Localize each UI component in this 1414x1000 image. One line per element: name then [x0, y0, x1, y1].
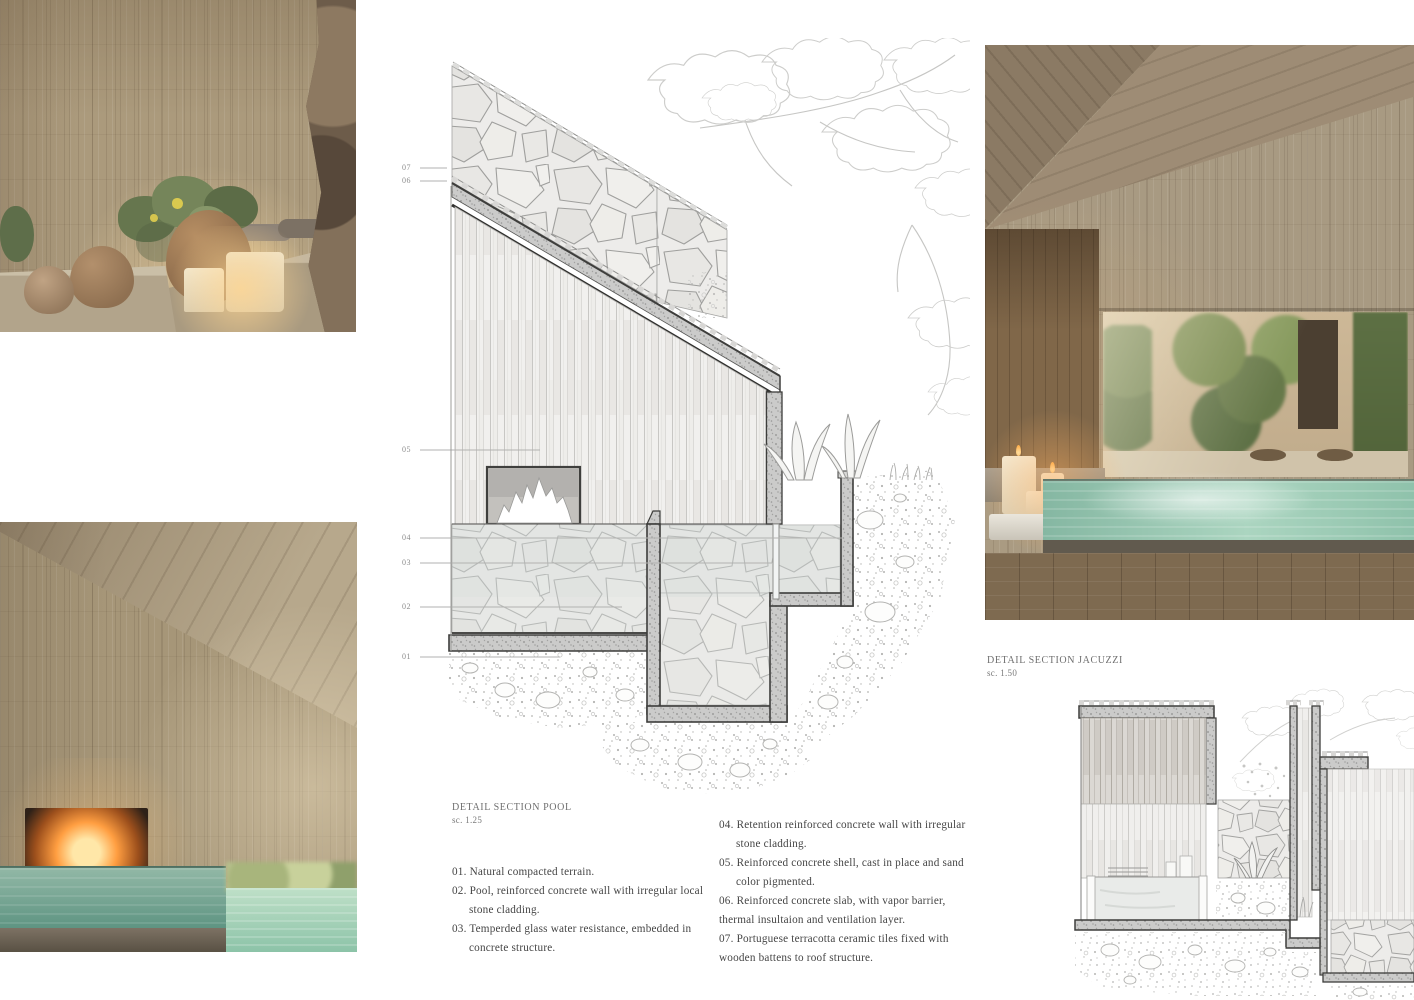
callout-01: 01 [402, 652, 411, 662]
sunlight-overlay [1103, 312, 1408, 478]
note-line: 06. Reinforced concrete slab, with vapor… [719, 892, 949, 911]
photo-fireplace-render [0, 522, 357, 952]
material-notes-col1: 01. Natural compacted terrain. 02. Pool,… [452, 863, 682, 958]
material-notes-col2: 04. Retention reinforced concrete wall w… [719, 816, 949, 968]
note-line: color pigmented. [719, 873, 949, 892]
stone-coping [1043, 540, 1414, 555]
fireplace-detail [487, 467, 580, 524]
wood-tub-front [985, 553, 1414, 620]
pool-floor-slab [449, 635, 660, 651]
stone-coping [0, 928, 230, 952]
note-line: 02. Pool, reinforced concrete wall with … [452, 882, 682, 901]
wall-edge [1320, 769, 1327, 975]
floor-slab [1323, 973, 1414, 982]
agave-plants [764, 414, 932, 480]
clay-pot [70, 246, 134, 308]
sunlit-pool-water [226, 888, 357, 952]
window-post [1199, 876, 1207, 922]
window-post [1087, 876, 1095, 922]
note-line: 04. Retention reinforced concrete wall w… [719, 816, 949, 835]
callout-07: 07 [402, 163, 411, 173]
jacuzzi-water [1095, 877, 1199, 922]
presentation-board: 07 06 05 04 03 02 01 [0, 0, 1414, 1000]
photo-jacuzzi-render [985, 45, 1414, 620]
roof-slab [1079, 706, 1214, 718]
callout-06: 06 [402, 176, 411, 186]
steam-mist [1071, 471, 1328, 529]
basin-wall-left [647, 524, 660, 714]
note-line: thermal insultaion and ventilation layer… [719, 911, 949, 930]
basin-wall-right [770, 601, 787, 722]
clay-pot [24, 266, 74, 314]
pool-drawing-scale: sc. 1.25 [452, 814, 572, 826]
note-line: stone cladding. [452, 901, 682, 920]
note-line: wooden battens to roof structure. [719, 949, 949, 968]
note-line: concrete structure. [452, 939, 682, 958]
photo-lounge-render [0, 0, 356, 332]
stone-basin-wall [1331, 920, 1414, 975]
callout-03: 03 [402, 558, 411, 568]
jacuzzi-drawing-title: DETAIL SECTION JACUZZI [987, 655, 1123, 667]
pool-detail-section-drawing [398, 38, 970, 800]
callout-02: 02 [402, 602, 411, 612]
note-line: 01. Natural compacted terrain. [452, 863, 682, 882]
board-strip [1297, 708, 1312, 917]
note-line: stone cladding. [719, 835, 949, 854]
note-line: 07. Portuguese terracotta ceramic tiles … [719, 930, 949, 949]
adjacent-room-section [1320, 752, 1414, 982]
jacuzzi-detail-section-drawing [1062, 682, 1414, 1000]
jacuzzi-drawing-caption: DETAIL SECTION JACUZZI sc. 1.50 [987, 655, 1123, 679]
fireplace [25, 808, 148, 870]
wall-a [1290, 706, 1297, 920]
candle [1166, 862, 1176, 877]
jacuzzi-drawing-scale: sc. 1.50 [987, 667, 1123, 679]
gravel [1216, 878, 1290, 922]
glass-panel [773, 524, 779, 599]
basin-floor-slab [647, 706, 787, 722]
courtyard [1216, 763, 1290, 922]
pool-drawing-caption: DETAIL SECTION POOL sc. 1.25 [452, 802, 572, 826]
candle [1180, 856, 1192, 877]
courtyard-window [1103, 312, 1408, 478]
hanging-wall [1206, 718, 1216, 804]
retention-wall [841, 477, 853, 606]
note-line: 05. Reinforced concrete shell, cast in p… [719, 854, 949, 873]
pool-drawing-title: DETAIL SECTION POOL [452, 802, 572, 814]
ivy-dots [1243, 763, 1286, 798]
upper-wall-boards [1081, 718, 1206, 804]
note-line: 03. Temperded glass water resistance, em… [452, 920, 682, 939]
pool-water [0, 866, 226, 932]
wall-b [1312, 706, 1320, 890]
wall-boards [1327, 769, 1414, 920]
twin-walls [1286, 701, 1324, 920]
callout-05: 05 [402, 445, 411, 455]
jacuzzi-room-section [1079, 701, 1216, 930]
candle-glow [146, 226, 336, 332]
roof-slab [1320, 757, 1368, 769]
callout-04: 04 [402, 533, 411, 543]
